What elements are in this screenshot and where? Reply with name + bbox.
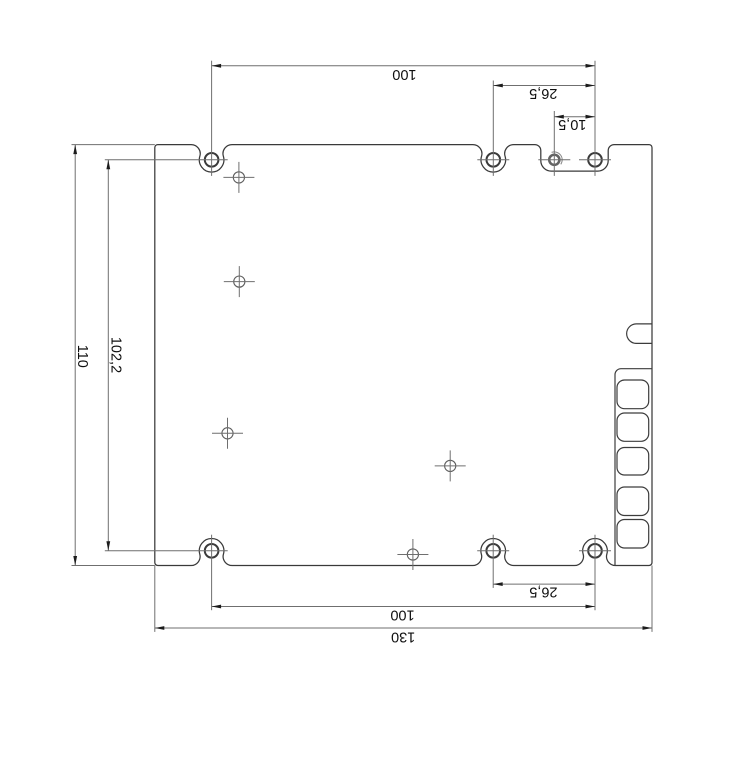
svg-text:26,5: 26,5 (529, 584, 557, 600)
svg-text:100: 100 (390, 606, 414, 622)
svg-text:10,5: 10,5 (558, 116, 586, 132)
svg-text:100: 100 (392, 66, 416, 82)
svg-text:26,5: 26,5 (529, 85, 557, 101)
svg-text:130: 130 (391, 629, 415, 645)
svg-text:110: 110 (74, 345, 90, 368)
svg-text:102,2: 102,2 (108, 337, 124, 373)
